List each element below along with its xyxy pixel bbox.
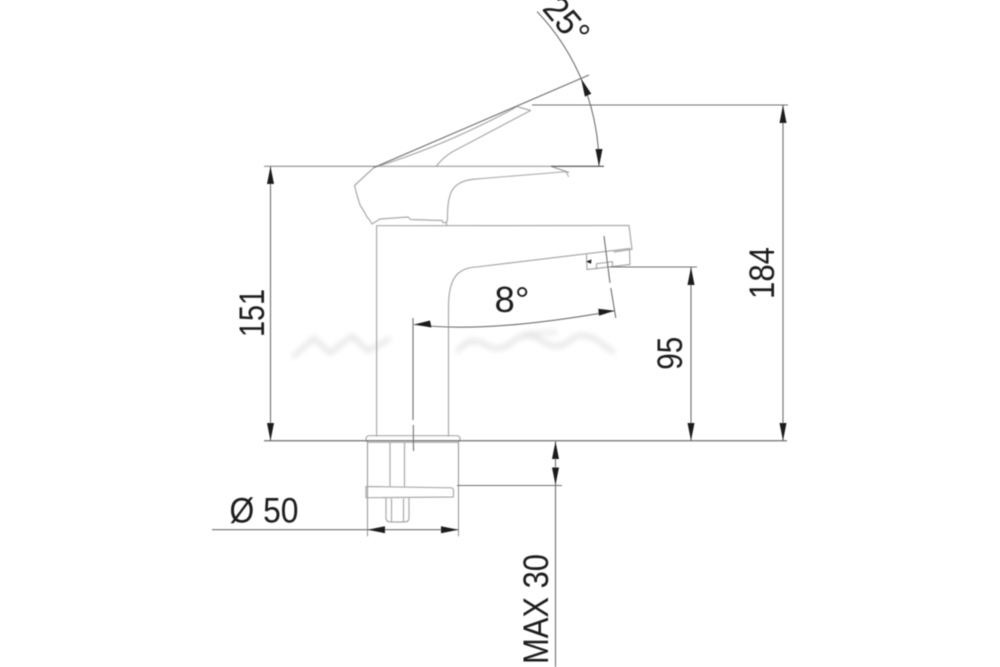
svg-text:8°: 8°: [495, 279, 530, 320]
svg-text:151: 151: [232, 289, 272, 337]
svg-text:MAX 30: MAX 30: [516, 554, 556, 664]
svg-text:25°: 25°: [535, 0, 598, 53]
svg-text:95: 95: [650, 337, 690, 370]
svg-text:184: 184: [742, 247, 782, 299]
svg-text:Ø 50: Ø 50: [230, 492, 299, 531]
